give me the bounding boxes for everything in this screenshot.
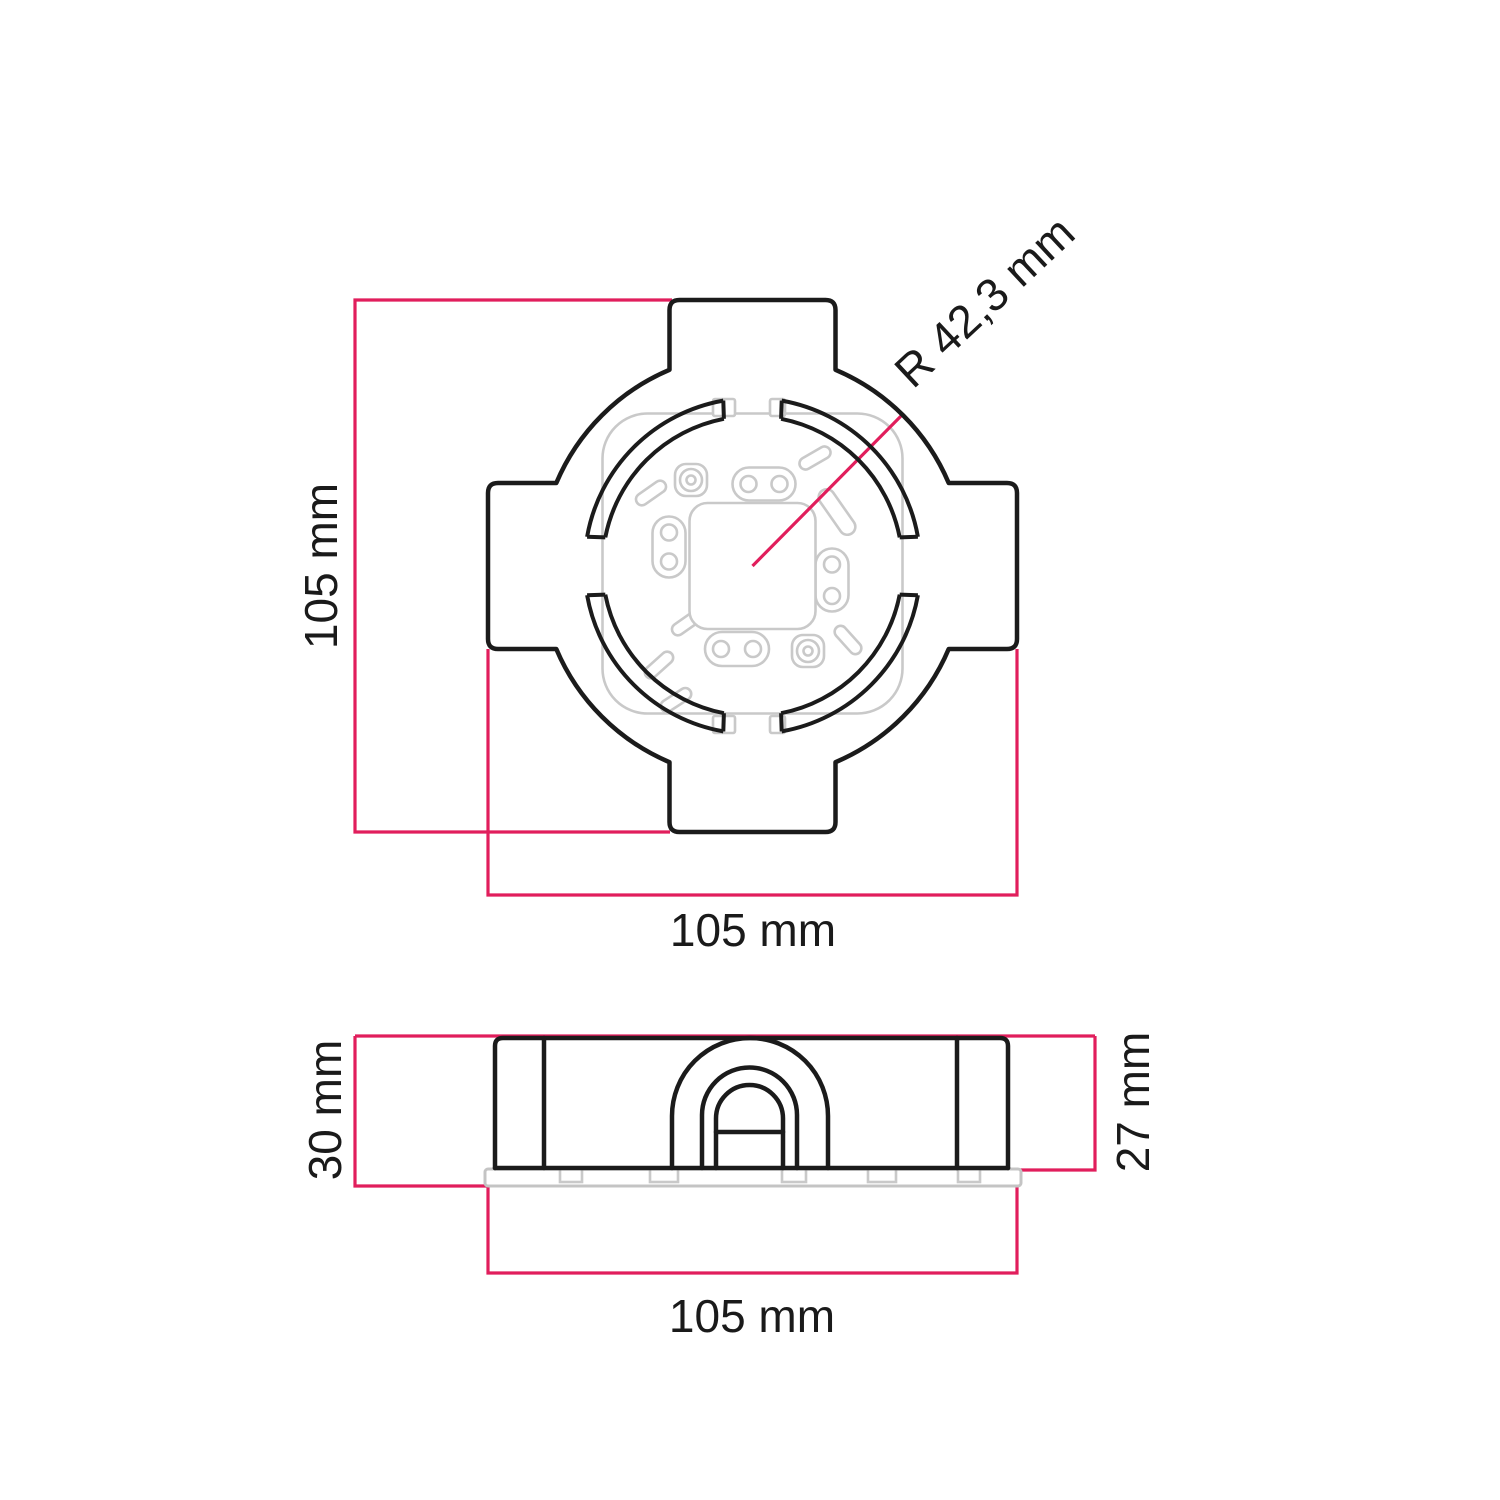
cable-slot <box>634 478 669 507</box>
dimension-width-bracket <box>488 649 1017 895</box>
cable-arch-outer <box>672 1038 828 1168</box>
cable-arch-inner <box>716 1085 783 1168</box>
screw-boss <box>792 635 824 667</box>
side-view-height-right-label: 27 mm <box>1107 1032 1159 1173</box>
terminal-pill <box>705 632 769 666</box>
top-view-radius-label: R 42,3 mm <box>884 206 1084 397</box>
side-view-dimensions <box>355 1036 1095 1273</box>
top-view: 105 mm 105 mm R 42,3 mm <box>295 206 1084 956</box>
cable-slot <box>832 623 864 656</box>
base-plate <box>485 1169 1021 1186</box>
cable-slot <box>797 444 832 471</box>
technical-drawing: 105 mm 105 mm R 42,3 mm <box>0 0 1500 1500</box>
dimension-30mm-bracket <box>355 1036 487 1186</box>
screw-boss <box>675 464 707 496</box>
top-view-width-label: 105 mm <box>670 904 836 956</box>
terminal-pill <box>733 468 796 501</box>
dimension-width-bracket <box>488 1186 1017 1273</box>
dimension-27mm-bracket <box>1008 1036 1095 1170</box>
side-view-width-label: 105 mm <box>669 1290 835 1342</box>
cable-slot <box>642 649 675 681</box>
terminal-pill <box>653 517 686 578</box>
side-view-body <box>495 1038 1008 1168</box>
side-view: 30 mm 27 mm 105 mm <box>299 1032 1159 1342</box>
dimension-height-bracket <box>355 300 672 832</box>
terminal-pill <box>816 549 849 612</box>
side-view-height-left-label: 30 mm <box>299 1040 351 1181</box>
top-view-height-label: 105 mm <box>295 483 347 649</box>
body-outline <box>495 1038 1008 1168</box>
